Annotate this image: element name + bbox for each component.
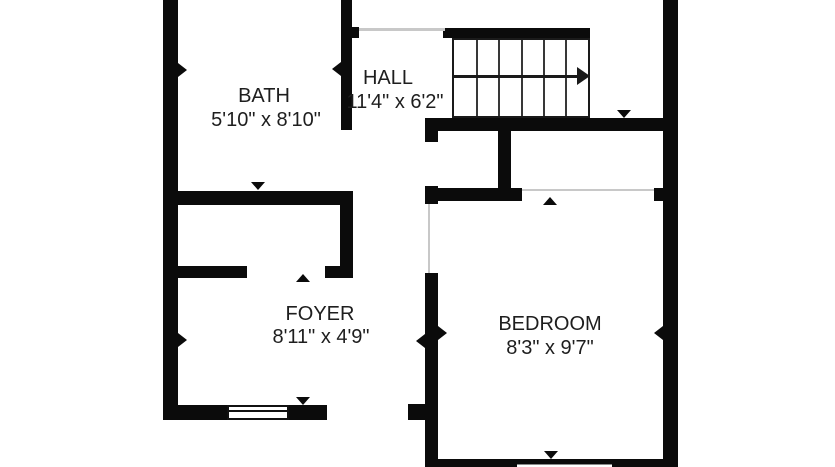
bedroom-top-wall [425,188,522,201]
room-dimensions-bedroom: 8'3" x 9'7" [506,337,593,359]
closet-bottom-right-stub [325,266,353,278]
left-exterior-wall [163,0,178,420]
foyer-bedroom-opening-line [428,204,430,273]
room-dimensions-bath: 5'10" x 8'10" [211,109,321,131]
door-marker-icon [251,182,265,190]
door-marker-icon [296,397,310,405]
stair-tread-line [543,40,545,116]
door-marker-icon [296,274,310,282]
stair-tread-line [476,40,478,116]
bath-hall-wall-stub [352,27,359,38]
door-marker-icon [416,334,425,348]
right-exterior-wall [663,0,678,467]
room-label-foyer: FOYER [286,303,355,325]
vestibule-divider-wall [498,131,511,189]
stair-tread-line [565,40,567,116]
bedroom-top-wall-right-stub [654,188,665,201]
door-marker-icon [543,197,557,205]
room-dimensions-foyer: 8'11" x 4'9" [272,326,369,348]
closet-bottom-wall [163,266,247,278]
stair-tread-line [521,40,523,116]
room-label-bath: BATH [238,85,290,107]
stairs-direction-arrow-icon [577,67,590,85]
room-dimensions-hall: 11'4" x 6'2" [346,91,443,113]
foyer-bedroom-wall [425,273,438,467]
door-marker-icon [617,110,631,118]
foyer-bottom-wall-left [163,405,227,420]
room-label-hall: HALL [363,67,413,89]
staircase [452,38,590,118]
door-marker-icon [654,326,663,340]
door-marker-icon [332,62,341,76]
room-label-bedroom: BEDROOM [498,313,601,335]
foyer-bottom-wall-right [289,405,327,420]
hall-bottom-wall-end-block [425,118,438,142]
bath-bottom-wall [163,191,353,205]
window-icon [227,405,289,420]
hall-top-opening-line [359,28,445,31]
bedroom-top-opening-line [522,189,654,191]
door-marker-icon [178,63,187,77]
door-marker-icon [178,333,187,347]
door-marker-icon [544,451,558,459]
stair-tread-line [498,40,500,116]
stairs-top-wall [443,28,590,38]
window-mullion [229,410,287,412]
floor-plan: BATH 5'10" x 8'10" HALL 11'4" x 6'2" FOY… [0,0,835,467]
hall-bottom-wall [427,118,663,131]
door-marker-icon [438,326,447,340]
stairs-direction-arrow-line [452,75,578,78]
